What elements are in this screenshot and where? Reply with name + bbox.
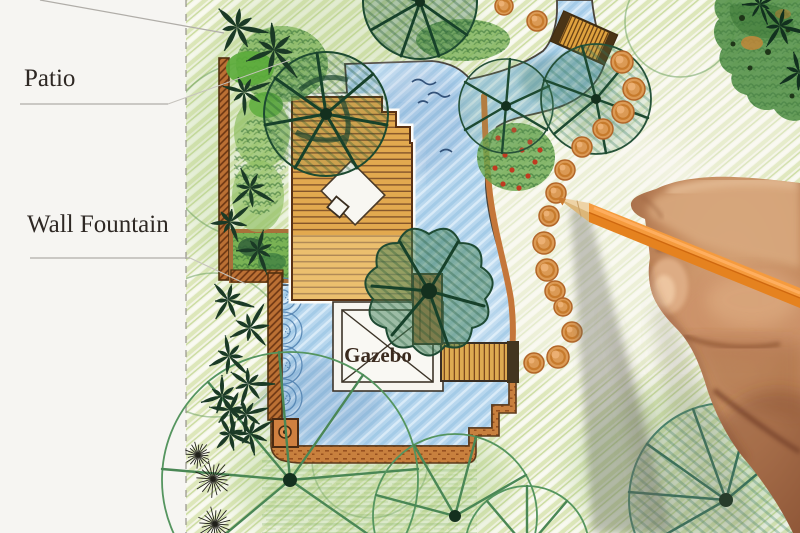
- svg-text:Patio: Patio: [24, 65, 75, 92]
- svg-text:Wall Fountain: Wall Fountain: [27, 211, 169, 238]
